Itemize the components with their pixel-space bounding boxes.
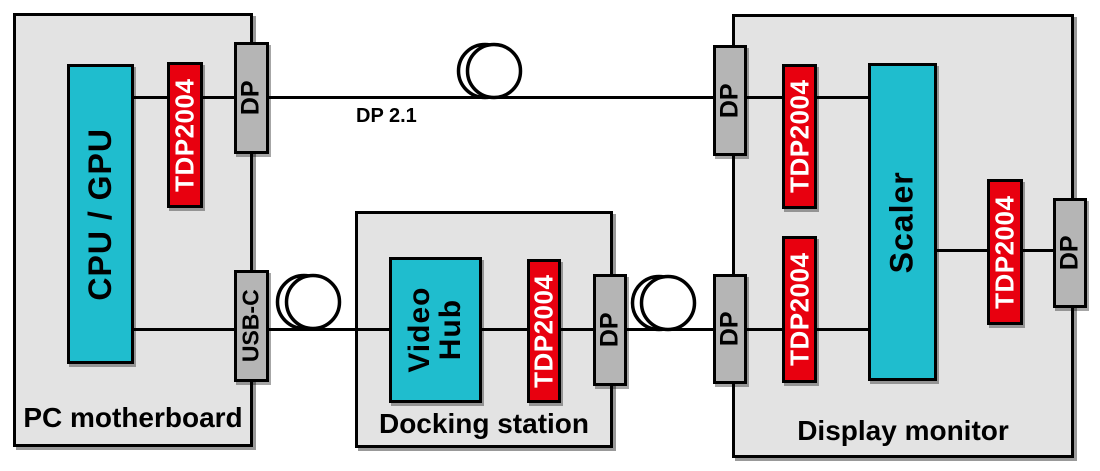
cpu-gpu-chip: CPU / GPU [67, 64, 134, 364]
dock-tdp2004-redriver: TDP2004 [527, 259, 561, 403]
pc-motherboard-label: PC motherboard [16, 402, 250, 434]
video-hub-chip-label-line1: Video [405, 287, 436, 374]
block-diagram-canvas: DP 2.1 PC motherboard CPU / GPU TDP2004 … [0, 0, 1100, 471]
monitor-tdp2004-bottom-label: TDP2004 [786, 253, 813, 366]
pc-usbc-port-label: USB-C [240, 290, 263, 363]
monitor-dp-in-bottom-port: DP [713, 274, 747, 384]
cpu-gpu-chip-label: CPU / GPU [84, 128, 117, 301]
monitor-tdp2004-redriver-top: TDP2004 [782, 64, 817, 209]
docking-station-label: Docking station [358, 408, 610, 440]
pc-tdp2004-label: TDP2004 [172, 78, 199, 191]
cable-coil-icon [450, 42, 524, 102]
dock-tdp2004-label: TDP2004 [531, 274, 558, 387]
monitor-tdp2004-top-label: TDP2004 [786, 80, 813, 193]
dock-dp-port: DP [593, 274, 627, 386]
monitor-dp-in-top-label: DP [717, 83, 743, 118]
cable-coil-icon [269, 273, 343, 333]
video-hub-chip: Video Hub [389, 257, 482, 403]
pc-dp-port: DP [234, 42, 269, 154]
monitor-dp-out-port: DP [1053, 198, 1087, 308]
video-hub-chip-label-line2: Hub [436, 287, 467, 374]
monitor-tdp2004-out-label: TDP2004 [992, 195, 1019, 308]
scaler-chip: Scaler [868, 63, 937, 381]
monitor-tdp2004-redriver-out: TDP2004 [987, 179, 1023, 325]
dock-dp-port-label: DP [597, 313, 623, 348]
cable-coil-icon [624, 274, 698, 334]
monitor-dp-in-top-port: DP [713, 45, 747, 156]
pc-tdp2004-redriver: TDP2004 [167, 62, 203, 208]
monitor-tdp2004-redriver-bottom: TDP2004 [782, 236, 817, 383]
monitor-dp-out-label: DP [1057, 236, 1083, 271]
pc-dp-port-label: DP [239, 81, 265, 116]
pc-usbc-port: USB-C [234, 270, 269, 382]
monitor-dp-in-bottom-label: DP [717, 312, 743, 347]
scaler-chip-label: Scaler [886, 171, 919, 273]
display-monitor-label: Display monitor [735, 415, 1071, 447]
dp21-cable-label: DP 2.1 [356, 105, 417, 128]
